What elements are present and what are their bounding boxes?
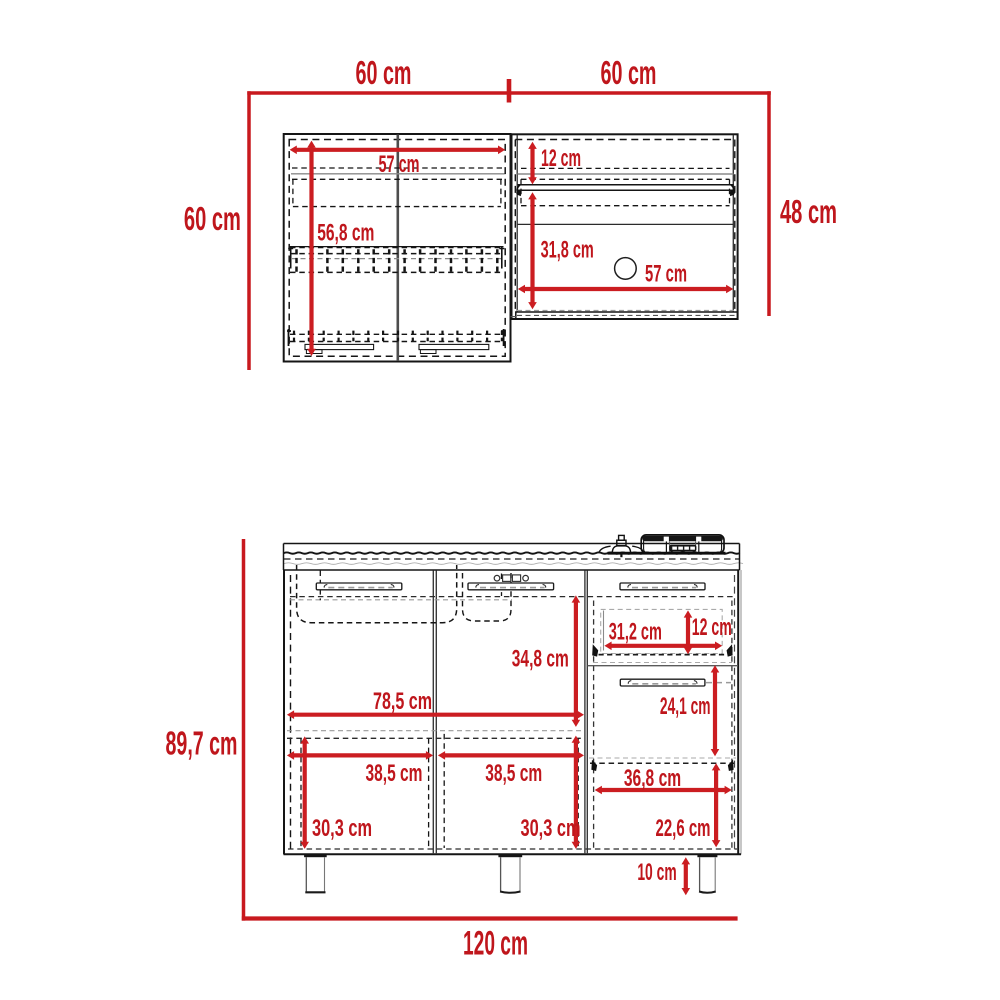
svg-text:120 cm: 120 cm <box>463 925 528 963</box>
svg-text:38,5 cm: 38,5 cm <box>485 760 542 787</box>
svg-text:31,2 cm: 31,2 cm <box>609 618 662 645</box>
svg-text:31,8 cm: 31,8 cm <box>541 237 594 264</box>
svg-text:10 cm: 10 cm <box>637 859 676 886</box>
svg-text:89,7 cm: 89,7 cm <box>166 726 238 763</box>
svg-text:22,6 cm: 22,6 cm <box>656 815 711 842</box>
svg-text:12 cm: 12 cm <box>692 614 732 641</box>
svg-text:12 cm: 12 cm <box>541 145 581 172</box>
svg-text:78,5 cm: 78,5 cm <box>373 688 432 715</box>
svg-text:36,8 cm: 36,8 cm <box>624 765 681 792</box>
svg-text:24,1 cm: 24,1 cm <box>660 693 711 720</box>
svg-text:60 cm: 60 cm <box>356 55 412 92</box>
svg-text:56,8 cm: 56,8 cm <box>317 220 374 247</box>
svg-text:38,5 cm: 38,5 cm <box>366 760 423 787</box>
svg-text:48 cm: 48 cm <box>780 194 837 231</box>
svg-text:30,3 cm: 30,3 cm <box>312 815 372 842</box>
svg-text:60 cm: 60 cm <box>184 201 241 238</box>
svg-text:60 cm: 60 cm <box>601 55 657 92</box>
svg-text:34,8 cm: 34,8 cm <box>512 645 569 672</box>
svg-text:57 cm: 57 cm <box>645 261 687 288</box>
svg-text:30,3 cm: 30,3 cm <box>521 815 581 842</box>
svg-text:57 cm: 57 cm <box>379 151 420 178</box>
